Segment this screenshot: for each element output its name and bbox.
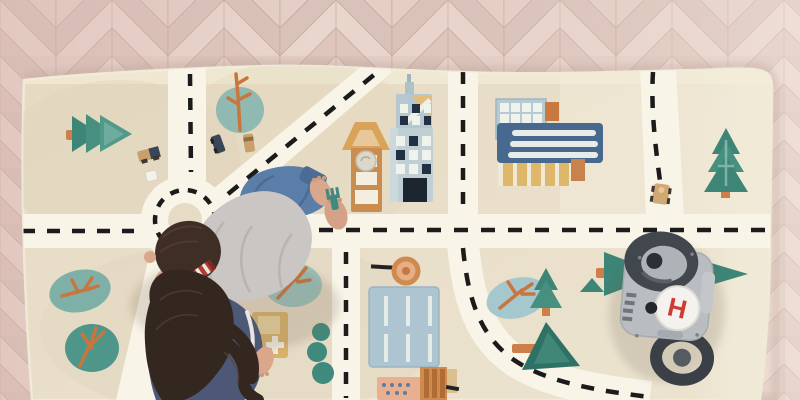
toy-car-4 — [650, 183, 673, 206]
toy-die — [145, 170, 158, 182]
scene-canvas: H — [0, 0, 800, 400]
parking-lot — [369, 287, 439, 367]
photo-playrug-scene: H — [0, 0, 800, 400]
boy-hand — [144, 251, 156, 263]
round-tree-bottomleft-2 — [65, 324, 119, 372]
